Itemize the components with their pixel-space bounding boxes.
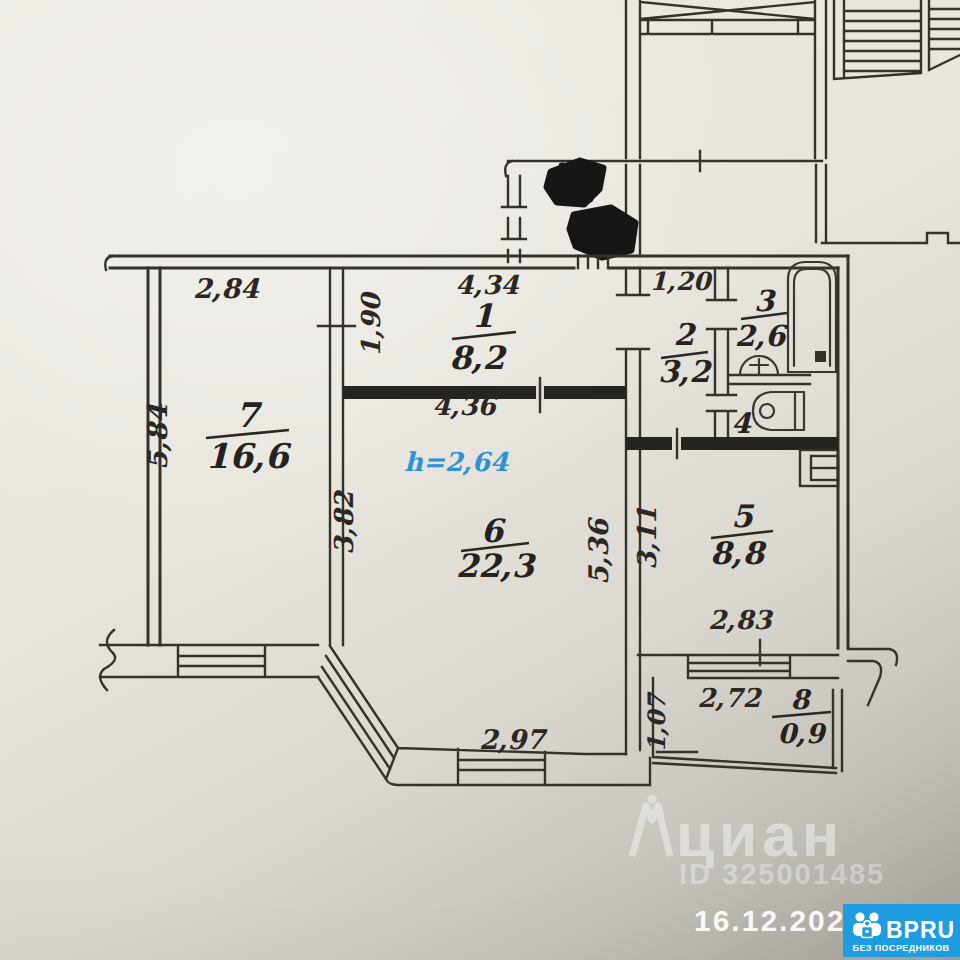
room-6-number: 6 (481, 512, 507, 550)
room-6-area: 22,3 (456, 547, 537, 585)
room-7-number: 7 (235, 395, 263, 435)
watermark: циан ID 325001485 (632, 795, 885, 891)
dim-room6-right: 5,36 (583, 516, 614, 585)
room-1-number: 1 (472, 297, 494, 335)
room-5-number: 5 (731, 498, 755, 534)
dim-room1-lower: 4,36 (432, 391, 498, 421)
room-5-area: 8,8 (710, 535, 767, 571)
room7-window (100, 645, 318, 677)
dim-room5-left: 3,11 (632, 506, 662, 569)
watermark-id: ID 325001485 (679, 858, 885, 890)
room-8-number: 8 (791, 684, 813, 715)
staircase (834, 0, 960, 79)
room-1-area: 8,2 (449, 339, 507, 377)
room-7-area: 16,6 (206, 436, 292, 476)
scribble-lower (570, 208, 635, 257)
bpru-badge: BPRU БЕЗ ПОСРЕДНИКОВ (843, 904, 960, 957)
bathtub-drain (815, 351, 826, 362)
room5-window (638, 640, 838, 678)
dim-room7-depth: 5,84 (142, 403, 173, 470)
badge-name: BPRU (886, 917, 955, 943)
photo-footer: 16.12.2025 BPRU БЕЗ ПОСРЕДНИКОВ (694, 904, 960, 957)
dim-room5-bottom: 2,83 (708, 605, 773, 635)
bay-window (318, 646, 650, 785)
dim-room6-bay-bottom: 2,97 (479, 724, 548, 755)
bathtub (788, 262, 836, 372)
badge-tagline: БЕЗ ПОСРЕДНИКОВ (853, 943, 950, 953)
room-4-number: 4 (731, 407, 752, 440)
floorplan-photo: 7 16,6 1 8,2 6 22,3 2 3,2 3 2,6 4 5 8,8 … (0, 0, 960, 960)
cian-logo-icon (632, 806, 670, 856)
floor-plan: 7 16,6 1 8,2 6 22,3 2 3,2 3 2,6 4 5 8,8 … (0, 0, 960, 960)
room-3-number: 3 (754, 284, 777, 318)
dim-room6-left: 3,82 (329, 489, 359, 554)
room-3-area: 2,6 (735, 319, 788, 353)
break-symbol (100, 630, 115, 690)
room-2-area: 3,2 (658, 354, 712, 389)
dim-balcony-width: 2,72 (697, 683, 762, 713)
room-2-number: 2 (674, 317, 697, 352)
sink (740, 356, 778, 375)
photo-date: 16.12.2025 (694, 904, 864, 937)
room-labels: 7 16,6 1 8,2 6 22,3 2 3,2 3 2,6 4 5 8,8 … (206, 284, 827, 749)
room-8-area: 0,9 (778, 718, 827, 749)
dim-room7-width: 2,84 (193, 273, 260, 304)
dim-wall-upper: 1,90 (356, 290, 386, 356)
ceiling-height-note: h=2,64 (404, 447, 509, 477)
dim-room1-width: 4,34 (455, 270, 519, 300)
dim-balcony-depth: 1,07 (642, 690, 671, 752)
dim-hall-width: 1,20 (650, 267, 713, 296)
neighbor-balcony (848, 649, 897, 705)
redaction-scribbles (547, 161, 635, 257)
scribble-upper (547, 161, 603, 204)
